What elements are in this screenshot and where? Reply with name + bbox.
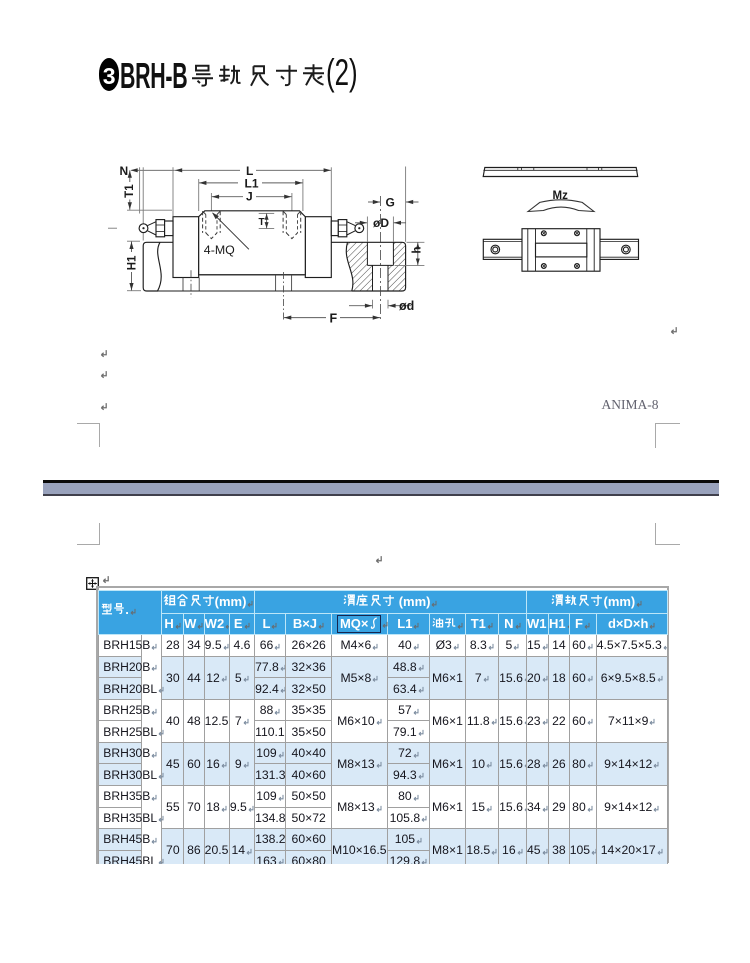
svg-text:J: J [246, 190, 253, 204]
svg-text:øD: øD [373, 216, 389, 230]
svg-text:T1: T1 [124, 184, 136, 198]
svg-text:G: G [386, 196, 395, 210]
svg-text:F: F [330, 311, 338, 325]
svg-text:H1: H1 [126, 255, 138, 270]
svg-text:4-MQ: 4-MQ [204, 243, 235, 257]
svg-text:ød: ød [399, 299, 414, 313]
svg-text:N: N [120, 164, 129, 178]
svg-text:L1: L1 [245, 176, 259, 190]
svg-text:h: h [412, 246, 424, 253]
svg-text:T: T [259, 217, 265, 228]
